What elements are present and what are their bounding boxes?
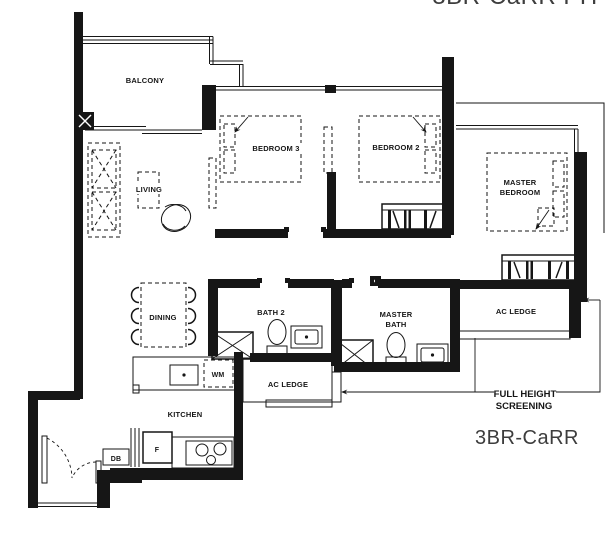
label-fridge: F (155, 447, 160, 454)
armchair (157, 199, 196, 236)
bath2-shower (212, 332, 253, 359)
label-washer: WM (212, 372, 225, 379)
label-bedroom3: BEDROOM 3 (252, 144, 299, 153)
balcony-drain-box (76, 112, 94, 130)
floorplan-page: BALCONY LIVING BEDROOM 3 BEDROOM 2 MASTE… (0, 0, 615, 541)
label-balcony: BALCONY (126, 76, 164, 85)
label-master-bedroom-line1: MASTER (504, 178, 537, 187)
label-bedroom2: BEDROOM 2 (372, 143, 419, 152)
label-dining: DINING (149, 313, 176, 322)
label-master-bath-line1: MASTER (380, 310, 413, 319)
label-ac-ledge-right: AC LEDGE (496, 307, 536, 316)
masterbath-toilet (386, 333, 406, 365)
entry-doors (42, 436, 101, 483)
label-kitchen: KITCHEN (168, 410, 203, 419)
label-living: LIVING (136, 185, 162, 194)
door-pocket-strips (209, 127, 332, 208)
floorplan-drawing: BALCONY LIVING BEDROOM 3 BEDROOM 2 MASTE… (0, 0, 615, 541)
bath2-toilet (267, 320, 287, 355)
bedroom2-wardrobe (382, 204, 443, 229)
label-db: DB (111, 456, 122, 463)
sofa (88, 143, 120, 237)
plan-title: 3BR-CaRR (475, 427, 579, 449)
kitchen-sink (170, 365, 198, 385)
label-master-bath-line2: BATH (385, 320, 406, 329)
label-master-bedroom-line2: BEDROOM (500, 188, 541, 197)
balcony-sliding-door (85, 127, 202, 134)
plan-title-top-clipped: 3BR-CaRR PH (432, 0, 598, 10)
label-screening-line1: FULL HEIGHT (494, 389, 557, 400)
label-screening-line2: SCREENING (496, 401, 552, 412)
label-ac-ledge-mid: AC LEDGE (268, 380, 308, 389)
bath2-sink (291, 326, 322, 348)
entry-threshold (38, 503, 97, 507)
master-wardrobe (502, 255, 575, 280)
hob (186, 441, 232, 465)
label-bath2: BATH 2 (257, 308, 285, 317)
tall-cabinet-lines (131, 428, 139, 467)
